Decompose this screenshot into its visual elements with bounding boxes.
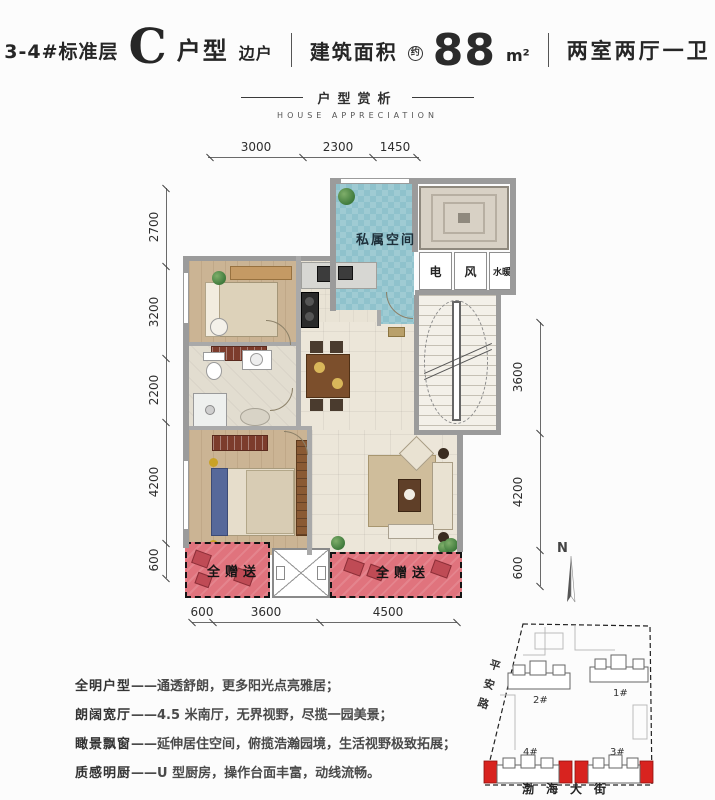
bookshelf: [212, 435, 268, 451]
site-map: 2# 1# 4# 3#: [475, 555, 710, 797]
feature-term: 全明户型: [75, 679, 131, 694]
bed-master-blanket: [246, 470, 294, 534]
dining-plate: [332, 378, 343, 389]
dining-chair: [330, 341, 343, 353]
feature-item: 全明户型——通透舒朗，更多阳光点亮雅居；: [75, 672, 456, 701]
wall-segment: [414, 295, 419, 435]
dim-label: 2300: [308, 140, 368, 154]
wall-segment: [307, 427, 312, 555]
plant-icon: [331, 536, 345, 550]
dim-line-bottom: [192, 622, 457, 623]
feature-desc: ——通透舒朗，更多阳光点亮雅居；: [131, 679, 339, 694]
dim-line-top: [208, 157, 419, 158]
building-3: 3#: [575, 747, 653, 783]
window: [340, 178, 410, 184]
wall-segment: [296, 256, 301, 346]
stair-swing-arc: [424, 300, 488, 424]
dim-label: 4500: [358, 605, 418, 619]
shower-drain: [205, 405, 215, 415]
nightstand-lamp: [209, 458, 218, 467]
window: [183, 272, 189, 324]
feature-term: 朗阔宽厅: [75, 708, 131, 723]
wall-segment: [296, 344, 301, 430]
toilet: [203, 352, 225, 361]
shaft-vent-label: 风: [464, 263, 476, 280]
wall-segment: [496, 295, 501, 435]
dim-label: 1450: [365, 140, 425, 154]
dining-chair: [330, 399, 343, 411]
feature-list: 全明户型——通透舒朗，更多阳光点亮雅居； 朗阔宽厅——4.5 米南厅，无界视野，…: [75, 672, 456, 788]
wall-segment: [189, 426, 312, 430]
window-symbol-end: [276, 566, 285, 580]
feature-term: 瞰景飘窗: [75, 737, 131, 752]
plant-icon: [212, 271, 226, 285]
elevator-pattern: [458, 213, 470, 223]
dining-chair: [310, 399, 323, 411]
building-2: 2#: [508, 661, 570, 706]
dim-label: 4200: [147, 458, 161, 506]
dim-label: 3000: [226, 140, 286, 154]
feature-desc: ——延伸居住空间，俯揽浩瀚园境，生活视野极致拓展；: [131, 737, 456, 752]
dim-line-right: [540, 322, 541, 586]
shaft-water-label: 水暖: [493, 265, 511, 278]
plant-icon: [338, 188, 355, 205]
stove-burner: [305, 312, 314, 321]
tv-bench: [388, 524, 434, 539]
sofa: [432, 462, 453, 530]
building-4: 4#: [484, 747, 572, 783]
coffee-table-plate: [404, 489, 415, 500]
desk: [230, 266, 292, 280]
wall-segment: [510, 178, 516, 295]
kitchen-sink: [338, 266, 353, 280]
bed-master-pillows: [211, 468, 228, 536]
wall-segment: [377, 310, 381, 326]
stool: [210, 318, 228, 336]
bath-rug: [240, 408, 270, 426]
dim-label: 3600: [236, 605, 296, 619]
toilet-bowl: [206, 362, 222, 380]
wall-segment: [457, 430, 463, 552]
dining-table: [306, 354, 350, 398]
feature-term: 质感明厨: [75, 766, 131, 781]
dim-label: 2700: [147, 203, 161, 251]
window: [183, 460, 189, 530]
private-space-label: 私属空间: [344, 229, 428, 248]
wall-segment: [183, 256, 336, 261]
road-label-bohai: 渤海大街: [495, 780, 645, 797]
stove-burner: [305, 297, 314, 306]
floorplan-page: 3-4#标准层 C 户型 边户 建筑面积 约 88 m² 两室两厅一卫 户型赏析…: [0, 0, 715, 800]
dim-label: 3200: [147, 288, 161, 336]
feature-desc: ——U 型厨房，操作台面丰富，动线流畅。: [131, 766, 380, 781]
dim-label: 600: [147, 536, 161, 584]
shaft-electric-label: 电: [429, 263, 441, 280]
shaft-vent: 风: [454, 252, 487, 290]
dining-chair: [310, 341, 323, 353]
building-2-label: 2#: [533, 695, 548, 706]
window-symbol-end: [317, 566, 326, 580]
side-table: [438, 448, 449, 459]
vanity-basin: [250, 353, 263, 366]
dim-label: 600: [172, 605, 232, 619]
gift-right-label: 全赠送: [376, 562, 430, 581]
wall-segment: [330, 178, 336, 311]
building-1: 1#: [590, 655, 648, 699]
dim-label: 2200: [147, 366, 161, 414]
gift-left-label: 全赠送: [207, 561, 261, 580]
feature-item: 瞰景飘窗——延伸居住空间，俯揽浩瀚园境，生活视野极致拓展；: [75, 730, 456, 759]
dim-label: 4200: [511, 468, 525, 516]
feature-item: 朗阔宽厅——4.5 米南厅，无界视野，尽揽一园美景；: [75, 701, 456, 730]
north-label: N: [557, 541, 568, 556]
plant-icon: [444, 538, 458, 552]
dim-label: 3600: [511, 353, 525, 401]
feature-desc: ——4.5 米南厅，无界视野，尽揽一园美景；: [131, 708, 393, 723]
entry-mat: [388, 327, 405, 337]
dining-plate: [314, 362, 325, 373]
building-1-label: 1#: [613, 688, 628, 699]
feature-item: 质感明厨——U 型厨房，操作台面丰富，动线流畅。: [75, 759, 456, 788]
dim-line-left: [166, 188, 167, 578]
shaft-electric: 电: [419, 252, 452, 290]
